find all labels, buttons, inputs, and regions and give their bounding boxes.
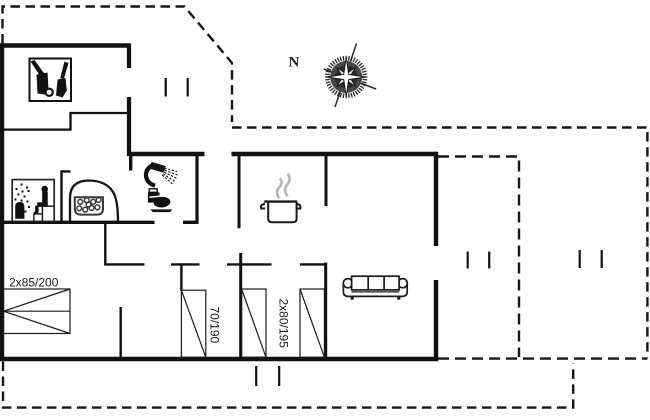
svg-text:2x80/195: 2x80/195 <box>277 299 291 349</box>
svg-text:70/190: 70/190 <box>208 307 222 344</box>
svg-text:2x85/200: 2x85/200 <box>9 276 59 290</box>
svg-text:N: N <box>289 55 300 71</box>
